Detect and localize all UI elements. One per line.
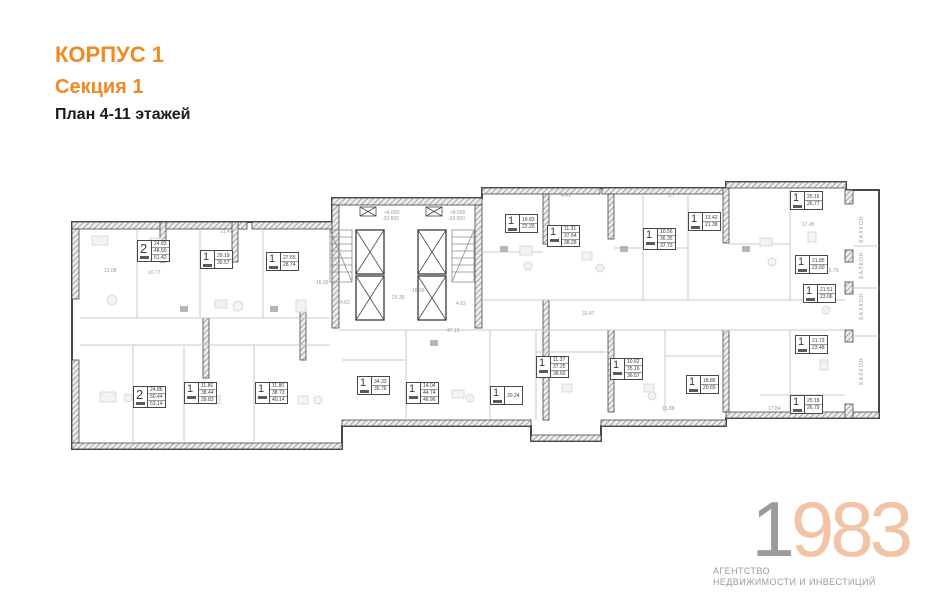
unit-area-value: 27.55	[281, 255, 298, 262]
unit-area-value: 23.48	[810, 345, 827, 351]
unit-room-count: 1	[798, 257, 807, 268]
unit-areas: 29.1930.57	[214, 251, 232, 268]
unit-tag-bar	[798, 349, 807, 352]
dimension-text: 47.19	[447, 328, 460, 334]
unit-tag-bar	[689, 389, 698, 392]
agency-logo: 1983 АГЕНТСТВО НЕДВИЖИМОСТИ И ИНВЕСТИЦИЙ	[679, 494, 909, 588]
dimension-text: 12.08	[104, 268, 117, 274]
unit-room-count: 1	[550, 227, 559, 238]
unit-area-value: 22.20	[520, 224, 537, 230]
unit-area-value: 20.65	[701, 385, 718, 391]
unit-room-count: 1	[806, 286, 815, 297]
unit-areas: 24.8348.5051.42	[151, 241, 169, 261]
unit-room-count: 1	[691, 214, 700, 225]
unit-areas: 11.3137.6438.28	[561, 226, 579, 246]
unit-areas: 27.5528.74	[280, 253, 298, 270]
unit-areas: 10.6235.1636.57	[624, 359, 642, 379]
unit-area-value: 51.42	[152, 255, 169, 261]
unit-area-value: 21.73	[810, 338, 827, 345]
unit-room-count: 1	[689, 377, 698, 388]
unit-area-value: 26.77	[805, 201, 822, 207]
unit-area-value: 38.28	[562, 240, 579, 246]
unit-area-value: 37.25	[551, 364, 568, 371]
unit-room-count: 1	[798, 337, 807, 348]
unit-area-value: 35.76	[372, 386, 389, 392]
dimension-text: 3.7	[668, 193, 675, 199]
unit-area-value: 50.44	[148, 394, 165, 401]
logo-subtitle-2: НЕДВИЖИМОСТИ И ИНВЕСТИЦИЙ	[713, 577, 909, 588]
dimension-text: 17.84	[768, 406, 781, 412]
logo-year: 1983	[679, 494, 909, 564]
unit-area-value: 36.35	[658, 236, 675, 243]
unit-room-count: 1	[613, 360, 622, 371]
unit-label: 121.5123.06	[803, 284, 836, 303]
unit-area-value: 19.83	[520, 217, 537, 224]
unit-label: 121.8523.60	[795, 255, 828, 274]
unit-area-value: 23.06	[818, 294, 835, 300]
unit-tag-bar	[360, 390, 369, 393]
balcony-label: БАЛКОН	[859, 350, 865, 392]
unit-label: 134.3335.76	[357, 376, 390, 395]
unit-label: 125.1626.77	[790, 191, 823, 210]
unit-area-value: 24.86	[148, 387, 165, 394]
unit-tag-bar	[493, 400, 502, 403]
balcony-label: БАЛКОН	[859, 244, 865, 286]
unit-areas: 24.8650.4453.14	[147, 387, 165, 407]
unit-label: 111.3737.2538.60	[536, 356, 569, 378]
unit-area-value: 35.16	[625, 366, 642, 373]
unit-area-value: 37.64	[562, 233, 579, 240]
unit-area-value: 40.14	[270, 397, 287, 403]
unit-areas: 11.8638.4439.83	[198, 383, 216, 403]
unit-tag-bar	[793, 409, 802, 412]
dimension-text: 4.62	[456, 301, 466, 307]
unit-label: 114.0444.7446.96	[406, 382, 439, 404]
unit-label: 129.1930.57	[200, 250, 233, 269]
unit-areas: 25.1826.79	[804, 396, 822, 413]
unit-areas: 18.8520.65	[700, 376, 718, 393]
dimension-text: 16.66	[412, 288, 425, 294]
unit-room-count: 1	[493, 388, 502, 399]
unit-tag-bar	[203, 264, 212, 267]
unit-tag-bar	[140, 256, 149, 259]
unit-area-value: 48.50	[152, 248, 169, 255]
dimension-text: 16.79	[826, 268, 839, 274]
unit-area-value: 24.83	[152, 241, 169, 248]
unit-label: 224.8348.5051.42	[137, 240, 170, 262]
unit-area-value: 23.60	[810, 265, 827, 271]
unit-tag-bar	[187, 396, 196, 399]
unit-areas: 13.4221.38	[702, 213, 720, 230]
unit-room-count: 1	[258, 384, 267, 395]
unit-areas: 25.1626.77	[804, 192, 822, 209]
unit-areas: 21.7323.48	[809, 336, 827, 353]
unit-label: 121.7323.48	[795, 335, 828, 354]
unit-areas: 11.8038.7340.14	[269, 383, 287, 403]
unit-areas: 21.8523.60	[809, 256, 827, 273]
unit-label: 111.8038.7340.14	[255, 382, 288, 404]
unit-area-value: 36.57	[625, 373, 642, 379]
unit-area-value: 38.44	[199, 390, 216, 397]
dimension-text: 16.66	[316, 280, 329, 286]
unit-area-value: 28.74	[281, 262, 298, 268]
unit-areas: 34.3335.76	[371, 377, 389, 394]
unit-area-value: 34.33	[372, 379, 389, 386]
logo-year-rest: 983	[791, 485, 909, 573]
unit-tag-bar	[550, 239, 559, 242]
unit-areas: 20.24	[504, 387, 522, 404]
unit-tag-bar	[269, 266, 278, 269]
unit-room-count: 1	[793, 193, 802, 204]
unit-room-count: 1	[793, 397, 802, 408]
unit-tag-bar	[409, 396, 418, 399]
dimension-text: 33.47	[582, 311, 595, 317]
unit-label: 110.5636.3537.73	[643, 228, 676, 250]
unit-area-value: 38.73	[270, 390, 287, 397]
unit-area-value: 14.04	[421, 383, 438, 390]
unit-areas: 21.5123.06	[817, 285, 835, 302]
unit-area-value: 46.96	[421, 397, 438, 403]
dimension-text: 4.41	[561, 193, 571, 199]
unit-area-value: 10.56	[658, 229, 675, 236]
unit-room-count: 1	[269, 254, 278, 265]
unit-room-count: 2	[136, 388, 145, 401]
unit-areas: 11.3737.2538.60	[550, 357, 568, 377]
unit-areas: 10.5636.3537.73	[657, 229, 675, 249]
unit-area-value: 39.83	[199, 397, 216, 403]
unit-tag-bar	[646, 242, 655, 245]
unit-area-value: 38.60	[551, 371, 568, 377]
dimension-text: -33.600	[448, 216, 465, 222]
unit-tag-bar	[539, 370, 548, 373]
unit-tag-bar	[508, 228, 517, 231]
dimension-text: 4.62	[340, 300, 350, 306]
unit-area-value: 26.79	[805, 405, 822, 411]
unit-areas: 14.0444.7446.96	[420, 383, 438, 403]
logo-year-digit: 1	[751, 485, 790, 573]
unit-area-value: 11.37	[551, 357, 568, 364]
dimension-text: 21.47	[220, 229, 233, 235]
unit-label: 125.1826.79	[790, 395, 823, 414]
unit-area-value: 29.19	[215, 253, 232, 260]
unit-area-value: 11.86	[199, 383, 216, 390]
dimension-text: 25.35	[392, 295, 405, 301]
dimension-text: -33.600	[382, 216, 399, 222]
unit-room-count: 1	[360, 378, 369, 389]
unit-area-value: 18.85	[701, 378, 718, 385]
unit-area-value: 11.80	[270, 383, 287, 390]
unit-room-count: 1	[203, 252, 212, 263]
unit-room-count: 2	[140, 242, 149, 255]
unit-area-value: 44.74	[421, 390, 438, 397]
unit-tag-bar	[798, 269, 807, 272]
dimension-text: 17.45	[802, 222, 815, 228]
unit-tag-bar	[136, 402, 145, 405]
unit-label: 120.24	[490, 386, 523, 405]
unit-area-value: 21.85	[810, 258, 827, 265]
unit-label: 119.8322.20	[505, 214, 538, 233]
unit-tag-bar	[806, 298, 815, 301]
unit-area-value: 30.57	[215, 260, 232, 266]
unit-area-value: 25.16	[805, 194, 822, 201]
unit-label: 118.8520.65	[686, 375, 719, 394]
unit-tag-bar	[793, 205, 802, 208]
unit-label: 127.5528.74	[266, 252, 299, 271]
unit-area-value: 37.73	[658, 243, 675, 249]
unit-areas: 19.8322.20	[519, 215, 537, 232]
unit-room-count: 1	[409, 384, 418, 395]
unit-tag-bar	[258, 396, 267, 399]
unit-area-value: 10.62	[625, 359, 642, 366]
unit-area-value: 20.24	[505, 393, 522, 399]
unit-room-count: 1	[539, 358, 548, 369]
unit-room-count: 1	[508, 216, 517, 227]
unit-area-value: 21.51	[818, 287, 835, 294]
unit-area-value: 13.42	[703, 215, 720, 222]
unit-area-value: 25.18	[805, 398, 822, 405]
unit-label: 111.3137.6438.28	[547, 225, 580, 247]
unit-label: 113.4221.38	[688, 212, 721, 231]
dimension-text: 15.88	[662, 406, 675, 412]
unit-tag-bar	[691, 226, 700, 229]
unit-label: 110.6235.1636.57	[610, 358, 643, 380]
unit-tag-bar	[613, 372, 622, 375]
unit-area-value: 53.14	[148, 401, 165, 407]
dimension-text: 10.77	[148, 270, 161, 276]
unit-label: 224.8650.4453.14	[133, 386, 166, 408]
unit-area-value: 21.38	[703, 222, 720, 228]
unit-room-count: 1	[187, 384, 196, 395]
balcony-label: БАЛКОН	[859, 285, 865, 327]
unit-room-count: 1	[646, 230, 655, 241]
unit-label: 111.8638.4439.83	[184, 382, 217, 404]
unit-area-value: 11.31	[562, 226, 579, 233]
